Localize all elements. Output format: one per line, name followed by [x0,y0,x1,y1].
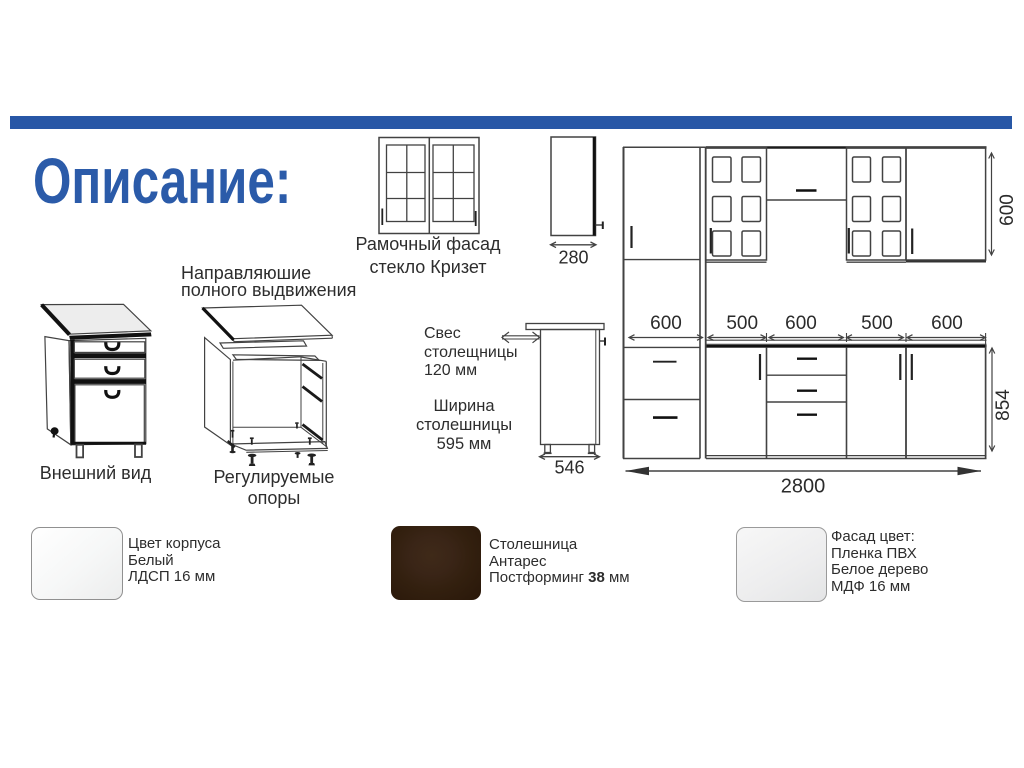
svg-text:500: 500 [726,313,758,334]
svg-text:600: 600 [997,194,1018,226]
svg-text:600: 600 [785,313,817,334]
svg-text:500: 500 [861,313,893,334]
svg-text:2800: 2800 [781,476,826,498]
svg-text:280: 280 [558,248,588,268]
svg-text:600: 600 [650,313,682,334]
svg-text:546: 546 [554,458,584,478]
svg-text:600: 600 [931,313,963,334]
svg-text:854: 854 [993,389,1014,421]
